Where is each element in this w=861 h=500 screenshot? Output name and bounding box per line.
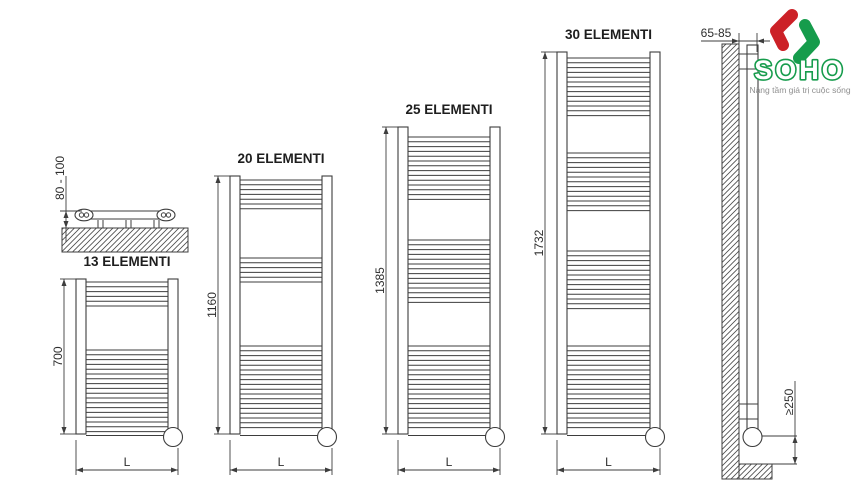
width-dimension: L [124,455,131,469]
dimension-arrow [76,468,83,473]
collector-tube-right [650,52,660,434]
dimension-arrow [793,457,798,464]
electric-element [486,428,505,447]
logo-wordmark: SOHO [754,55,846,85]
wall-section-hatch [62,228,188,252]
logo-swoosh-green-icon [799,25,814,58]
dimension-arrow [325,468,332,473]
dimension-arrow [543,427,548,434]
height-dimension: 1732 [532,229,546,256]
radiator-25-elementi: 25 ELEMENTI1385L [373,102,505,475]
height-dimension: 1385 [373,267,387,294]
dimension-arrow [543,52,548,59]
radiator-13-elementi: 13 ELEMENTI700L [51,254,183,475]
dimension-arrow [793,436,798,443]
collector-tube-right [490,127,500,434]
wall-brackets [98,220,159,228]
soho-logo: SOHO Nâng tầm giá trị cuộc sống [749,15,850,95]
radiator-20-elementi: 20 ELEMENTI1160L [205,151,337,475]
collector-tube-right [322,176,332,434]
dimension-arrow [216,427,221,434]
logo-swoosh-red-icon [776,15,792,45]
radiator-label: 30 ELEMENTI [565,27,652,42]
dimension-arrow [171,468,178,473]
diagram-canvas: 80 - 100 13 ELEMENTI700L 20 ELEMENTI1160… [0,0,861,500]
dimension-arrow [62,279,67,286]
dimension-arrow [384,127,389,134]
height-dimension: 1160 [205,292,219,318]
radiator-label: 13 ELEMENTI [83,254,170,269]
dimension-arrow [557,468,564,473]
wall-gap-dimension: 80 - 100 [53,156,67,200]
dimension-arrow [62,427,67,434]
electric-element [318,428,337,447]
floor-hatch [739,464,772,479]
radiator-label: 25 ELEMENTI [405,102,492,117]
electric-element [164,428,183,447]
dimension-arrow [230,468,237,473]
collector-tube-right [168,279,178,434]
collector-tube-left [230,176,240,434]
radiator-label: 20 ELEMENTI [237,151,324,166]
electric-element [646,428,665,447]
dimension-arrow [757,39,764,44]
width-dimension: L [446,455,453,469]
collector-tube-left [557,52,567,434]
dimension-arrow [64,221,69,228]
radiator-side-tube [747,45,758,430]
dimension-arrow [384,427,389,434]
width-dimension: L [605,455,612,469]
width-dimension: L [278,455,285,469]
floor-clearance-dimension: ≥250 [782,388,796,415]
wall-hatch [722,44,739,479]
wall-distance-dimension: 65-85 [701,26,732,40]
height-dimension: 700 [51,346,65,366]
dimension-arrow [216,176,221,183]
collector-tube-left [76,279,86,434]
radiator-30-elementi: 30 ELEMENTI1732L [532,27,665,475]
top-view: 80 - 100 [53,156,188,252]
electric-element [743,428,762,447]
collector-tube-left [398,127,408,434]
dimension-arrow [64,211,69,218]
dimension-arrow [493,468,500,473]
dimension-arrow [398,468,405,473]
logo-tagline: Nâng tầm giá trị cuộc sống [749,85,850,95]
radiator-technical-drawing: 80 - 100 13 ELEMENTI700L 20 ELEMENTI1160… [0,0,861,500]
dimension-arrow [653,468,660,473]
dimension-arrow [732,39,739,44]
